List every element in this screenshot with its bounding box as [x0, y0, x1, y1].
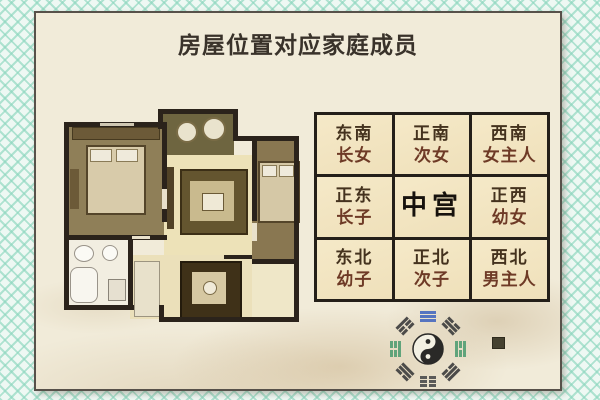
direction-label: 西南 [491, 123, 529, 145]
wall [158, 109, 238, 114]
coffee-table [202, 193, 224, 211]
member-label: 次女 [414, 145, 450, 167]
door-opening [132, 236, 150, 239]
direction-label: 东南 [335, 123, 373, 145]
wall [64, 305, 134, 310]
palace-cell-southeast: 东南 长女 [317, 115, 392, 174]
taiji-bagua-icon [366, 301, 490, 397]
dresser [70, 169, 79, 209]
nine-palace-grid: 东南 长女 正南 次女 西南 女主人 正东 长子 中宫 正西 幼女 东北 幼子 … [314, 112, 550, 302]
pillow [90, 149, 112, 162]
poster-card: 房屋位置对应家庭成员 [34, 11, 562, 391]
wall [159, 317, 299, 322]
wall [294, 136, 299, 322]
wardrobe [72, 127, 160, 140]
member-label: 男主人 [483, 269, 537, 291]
wall [64, 122, 69, 310]
pillow [262, 165, 277, 177]
member-label: 长子 [336, 207, 372, 229]
direction-label: 正南 [413, 123, 451, 145]
direction-label: 东北 [335, 247, 373, 269]
wall [128, 235, 133, 310]
direction-label: 中宫 [401, 190, 463, 224]
wall [159, 305, 164, 322]
balcony-basin [202, 117, 226, 141]
member-label: 次子 [414, 269, 450, 291]
pillow [279, 165, 294, 177]
palace-cell-southwest: 西南 女主人 [472, 115, 547, 174]
seal-stamp-icon [492, 337, 505, 349]
wall [224, 255, 252, 259]
palace-cell-northwest: 西北 男主人 [472, 240, 547, 299]
direction-label: 正东 [335, 185, 373, 207]
wall [233, 136, 299, 141]
palace-cell-northeast: 东北 幼子 [317, 240, 392, 299]
tv-cabinet [167, 167, 174, 229]
window [100, 123, 134, 126]
bathtub [70, 267, 98, 303]
page-title: 房屋位置对应家庭成员 [36, 26, 560, 60]
balcony-basin [176, 121, 198, 143]
plate [203, 281, 217, 295]
toilet [74, 245, 94, 262]
pillow [116, 149, 138, 162]
member-label: 女主人 [483, 145, 537, 167]
member-label: 长女 [336, 145, 372, 167]
palace-cell-south: 正南 次女 [395, 115, 470, 174]
direction-label: 正西 [491, 185, 529, 207]
washer [108, 279, 126, 301]
door-opening [252, 223, 257, 241]
door-opening [162, 189, 167, 209]
palace-cell-center: 中宫 [395, 177, 470, 236]
wall [252, 136, 257, 221]
direction-label: 西北 [491, 247, 529, 269]
wall [64, 235, 167, 240]
member-label: 幼子 [336, 269, 372, 291]
palace-cell-north: 正北 次子 [395, 240, 470, 299]
room-entry [252, 261, 299, 319]
member-label: 幼女 [492, 207, 528, 229]
floor-plan [64, 109, 302, 323]
palace-cell-east: 正东 长子 [317, 177, 392, 236]
direction-label: 正北 [413, 247, 451, 269]
kitchen-counter [134, 261, 160, 317]
sink [102, 245, 118, 261]
wall [252, 259, 299, 264]
palace-cell-west: 正西 幼女 [472, 177, 547, 236]
